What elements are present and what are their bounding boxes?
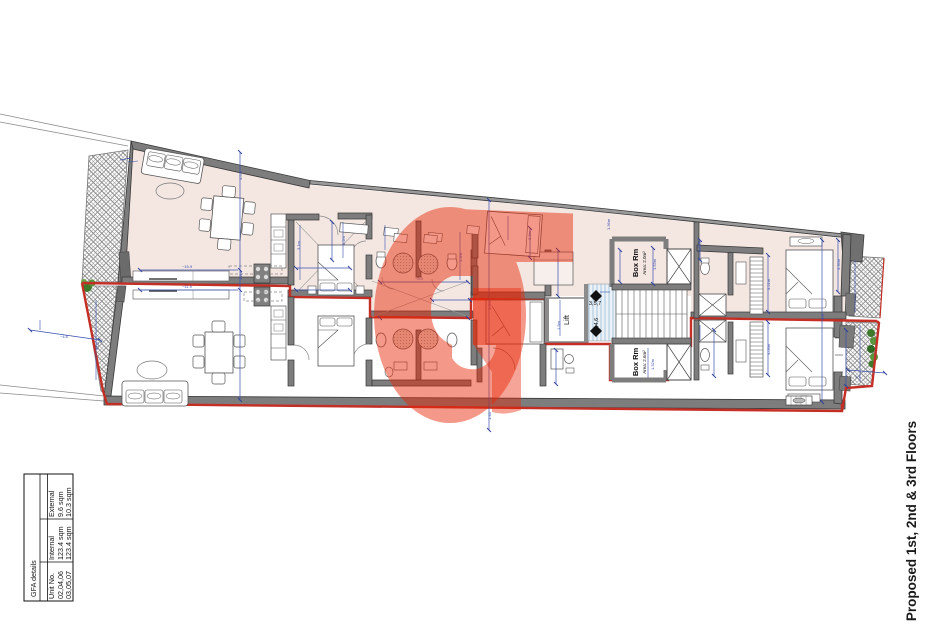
svg-text:0.31m: 0.31m bbox=[696, 240, 701, 252]
svg-text:1.36m: 1.36m bbox=[606, 218, 611, 230]
svg-text:External: External bbox=[47, 490, 56, 517]
svg-text:4.03m: 4.03m bbox=[766, 343, 771, 355]
svg-text:03,05,07: 03,05,07 bbox=[64, 571, 73, 599]
svg-text:1.44: 1.44 bbox=[487, 411, 492, 420]
svg-text:Area: 2.0m²: Area: 2.0m² bbox=[642, 251, 647, 275]
svg-text:GFA details: GFA details bbox=[29, 560, 38, 597]
svg-text:Unit No.: Unit No. bbox=[47, 573, 56, 599]
svg-text:~4.6: ~4.6 bbox=[60, 334, 69, 339]
svg-text:1.1: 1.1 bbox=[855, 374, 861, 379]
svg-text:3.36m: 3.36m bbox=[836, 258, 841, 270]
svg-text:4.5.9: 4.5.9 bbox=[238, 170, 243, 180]
svg-text:4.4: 4.4 bbox=[820, 314, 825, 320]
svg-text:4.8m: 4.8m bbox=[238, 270, 243, 280]
svg-text:1.53m: 1.53m bbox=[652, 258, 657, 270]
svg-text:Proposed 1st, 2nd & 3rd Floors: Proposed 1st, 2nd & 3rd Floors bbox=[904, 421, 919, 621]
svg-text:2.2m: 2.2m bbox=[341, 235, 346, 245]
svg-text:Lift: Lift bbox=[562, 314, 571, 325]
svg-text:~11.9: ~11.9 bbox=[182, 284, 193, 289]
svg-text:Internal: Internal bbox=[47, 536, 56, 560]
svg-text:Area: 2.6m²: Area: 2.6m² bbox=[642, 350, 647, 374]
svg-text:3.21m: 3.21m bbox=[766, 278, 771, 290]
svg-text:1.32m: 1.32m bbox=[650, 358, 655, 370]
svg-text:123.4 sqm: 123.4 sqm bbox=[64, 526, 73, 560]
svg-text:Box Rm: Box Rm bbox=[631, 348, 640, 377]
svg-text:1.5m: 1.5m bbox=[556, 320, 561, 330]
svg-text:3,5,7: 3,5,7 bbox=[589, 301, 601, 307]
svg-text:Box Rm: Box Rm bbox=[631, 249, 640, 278]
svg-text:2,4,6: 2,4,6 bbox=[594, 318, 600, 330]
svg-text:3.1m: 3.1m bbox=[296, 240, 301, 250]
svg-text:10.3 sqm: 10.3 sqm bbox=[64, 487, 73, 517]
svg-text:~15.9: ~15.9 bbox=[182, 264, 193, 269]
